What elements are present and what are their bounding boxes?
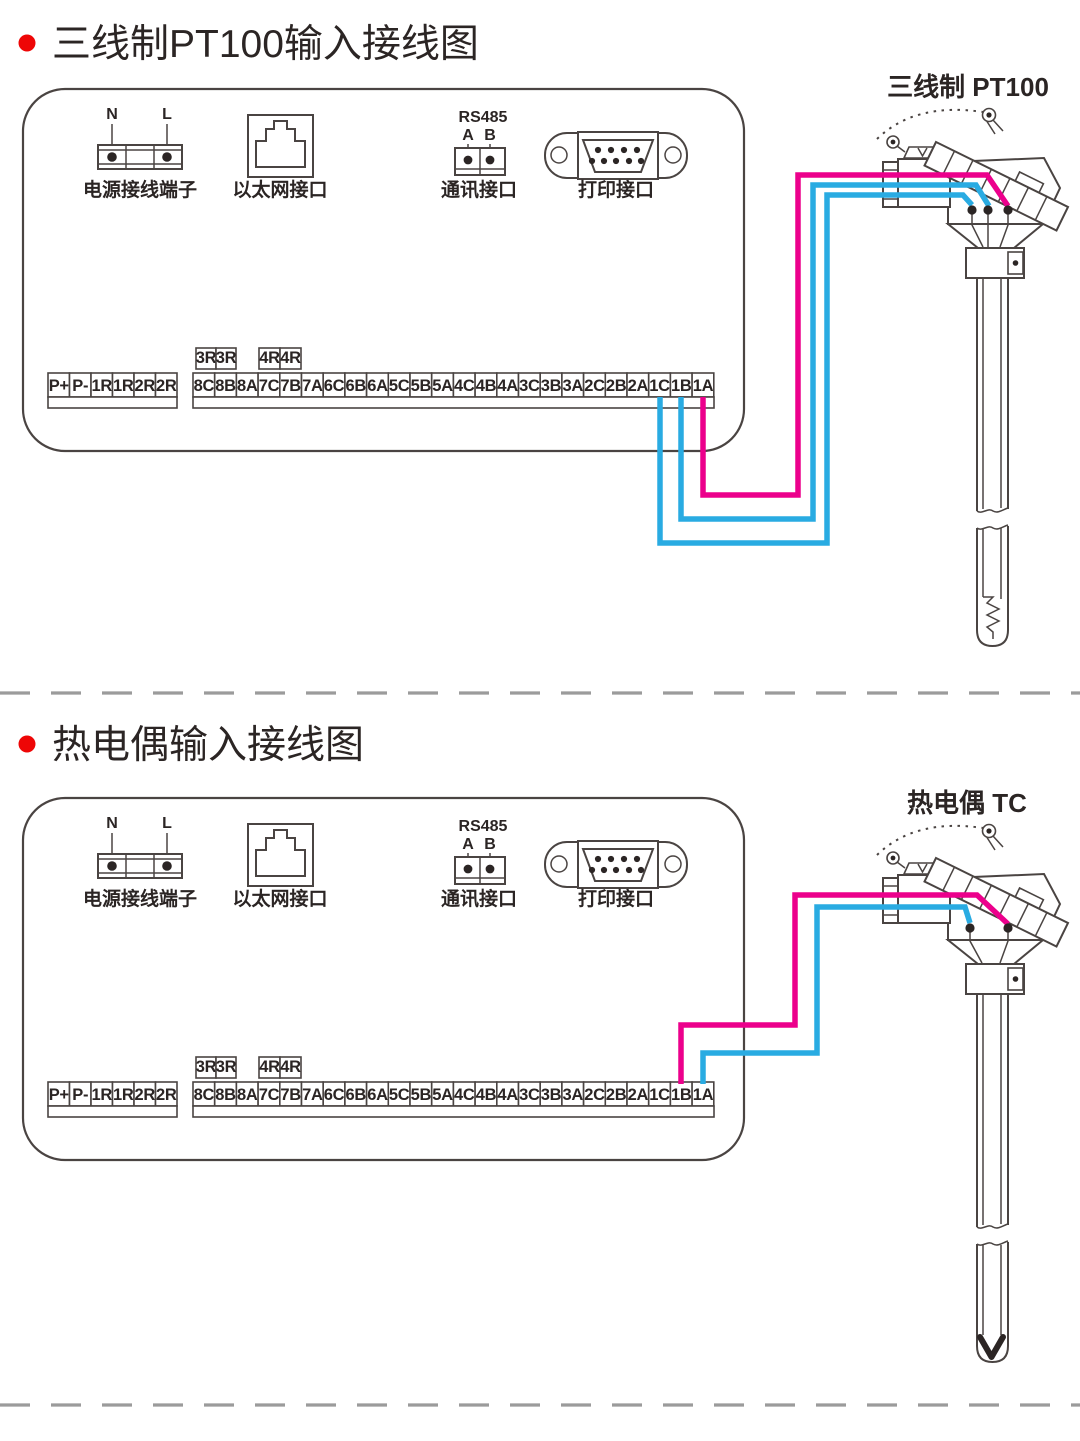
- head-terminal-minus: [965, 923, 974, 932]
- head-terminal-a: [967, 205, 976, 214]
- panel-instance-tc: [23, 798, 744, 1160]
- sensor-instance-pt100: [877, 109, 1068, 647]
- bullet-icon: [19, 35, 36, 52]
- rtd-element-icon: [983, 597, 999, 639]
- tc-junction-icon: [980, 1337, 1003, 1357]
- panel-instance-pt100: [23, 89, 744, 451]
- sensor-type-label: 三线制 PT100: [887, 72, 1049, 102]
- section-pt100: 三线制PT100输入接线图 三线制 PT100: [19, 23, 1069, 646]
- head-terminal-plus: [1003, 923, 1012, 932]
- wire-pt100-1b-cyan: [681, 185, 989, 519]
- section-title: 三线制PT100输入接线图: [52, 23, 479, 66]
- diagram-canvas: N L 电源接线端子 以太网接口 RS485: [0, 0, 1080, 1441]
- section-title: 热电偶输入接线图: [52, 724, 364, 767]
- bullet-icon: [19, 736, 36, 753]
- sensor-type-label: 热电偶 TC: [907, 788, 1027, 818]
- wire-pt100-1c-cyan: [660, 195, 972, 543]
- wiring-diagram-page: N L 电源接线端子 以太网接口 RS485: [0, 0, 1080, 1441]
- head-terminal-c: [1003, 205, 1012, 214]
- head-terminal-b: [983, 205, 992, 214]
- section-thermocouple: 热电偶输入接线图 热电偶 TC: [19, 724, 1069, 1362]
